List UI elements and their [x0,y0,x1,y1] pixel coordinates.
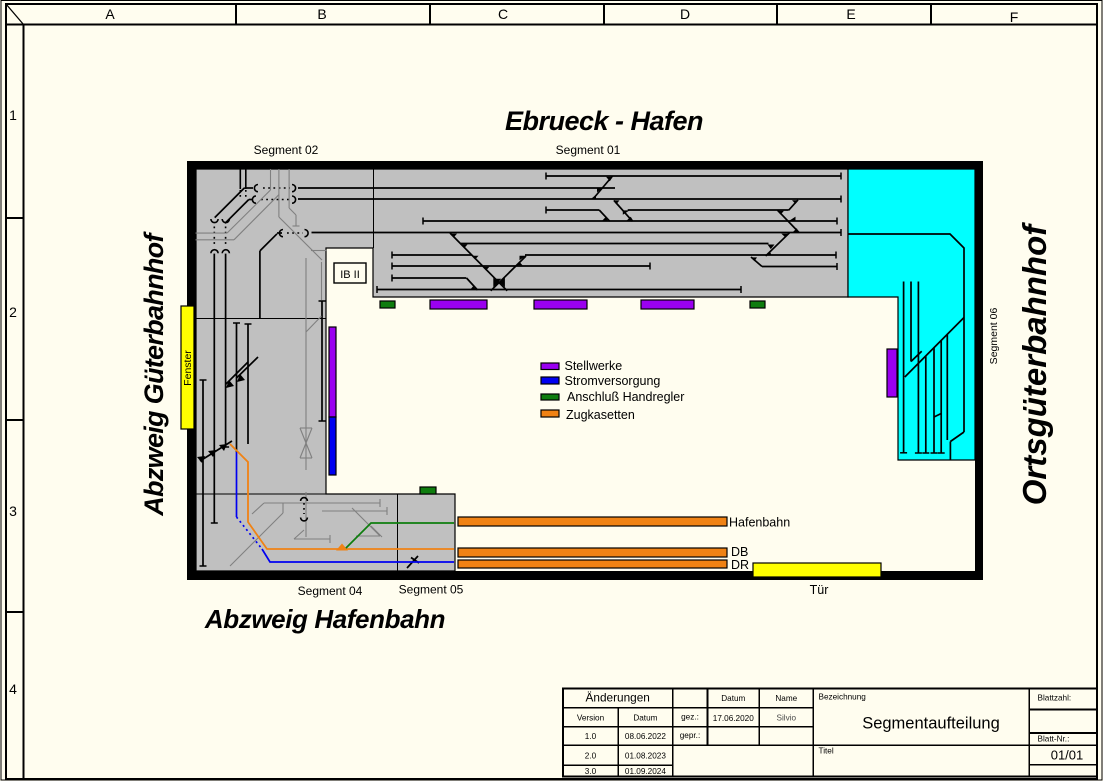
svg-text:01.09.2024: 01.09.2024 [625,767,666,776]
svg-text:Silvio: Silvio [777,714,797,723]
svg-text:Änderungen: Änderungen [586,691,650,705]
svg-text:2: 2 [9,304,17,320]
svg-text:Segment 05: Segment 05 [399,583,464,597]
svg-text:gez.:: gez.: [681,713,699,722]
svg-text:2.0: 2.0 [585,752,597,761]
svg-text:1.0: 1.0 [585,732,597,741]
svg-text:Ortsgüterbahnhof: Ortsgüterbahnhof [1016,222,1053,505]
svg-text:C: C [498,6,508,22]
svg-text:A: A [105,6,115,22]
svg-text:1: 1 [9,107,17,123]
svg-text:Datum: Datum [721,694,745,703]
svg-text:Segment 01: Segment 01 [556,143,621,157]
svg-text:08.06.2022: 08.06.2022 [625,732,666,741]
svg-text:3.0: 3.0 [585,767,597,776]
svg-text:Stellwerke: Stellwerke [565,359,623,373]
svg-text:B: B [317,6,326,22]
svg-text:Segment 04: Segment 04 [298,584,363,598]
svg-text:4: 4 [9,681,17,697]
svg-text:Segment 06: Segment 06 [988,308,1000,365]
svg-text:Blatt-Nr.:: Blatt-Nr.: [1038,735,1070,744]
svg-text:Blattzahl:: Blattzahl: [1038,694,1072,703]
svg-text:Hafenbahn: Hafenbahn [729,516,790,530]
svg-text:3: 3 [9,503,17,519]
svg-text:Bezeichnung: Bezeichnung [819,693,867,702]
svg-text:Name: Name [775,694,797,703]
svg-text:D: D [680,6,690,22]
svg-text:Ebrueck - Hafen: Ebrueck - Hafen [505,106,703,136]
svg-text:DR: DR [731,558,749,572]
svg-text:01.08.2023: 01.08.2023 [625,752,666,761]
svg-text:F: F [1010,9,1019,25]
svg-text:Segment 02: Segment 02 [254,143,319,157]
svg-text:gepr.:: gepr.: [680,731,700,740]
svg-text:17.06.2020: 17.06.2020 [713,714,754,723]
svg-text:Version: Version [577,714,605,723]
svg-text:Anschluß Handregler: Anschluß Handregler [567,390,684,404]
svg-text:Abzweig Güterbahnhof: Abzweig Güterbahnhof [139,231,169,517]
svg-text:Abzweig Hafenbahn: Abzweig Hafenbahn [204,604,445,634]
svg-text:Stromversorgung: Stromversorgung [565,374,661,388]
svg-text:DB: DB [731,545,748,559]
svg-text:IB II: IB II [340,269,360,281]
svg-text:01/01: 01/01 [1051,748,1084,763]
svg-text:E: E [846,6,855,22]
svg-text:Titel: Titel [819,747,834,756]
svg-text:Datum: Datum [633,714,657,723]
svg-text:Zugkasetten: Zugkasetten [566,408,635,422]
svg-text:Fenster: Fenster [182,350,194,386]
svg-text:Tür: Tür [810,583,829,597]
svg-text:Segmentaufteilung: Segmentaufteilung [862,715,1000,733]
